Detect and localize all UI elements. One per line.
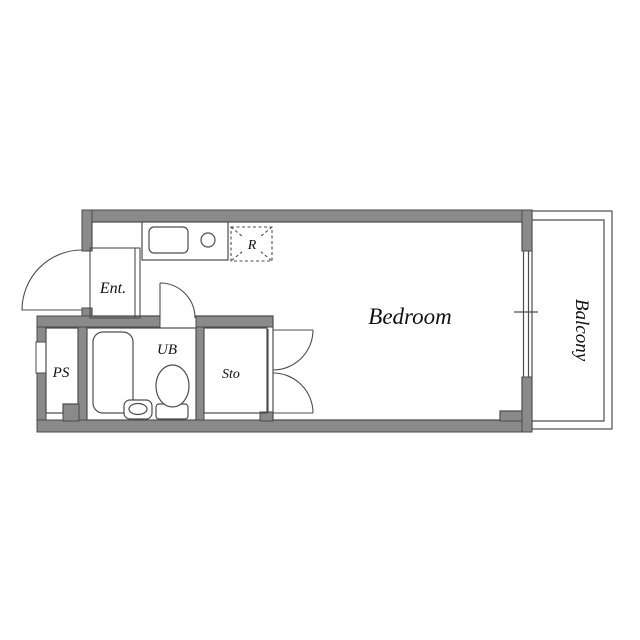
balcony-label: Balcony [571, 299, 592, 362]
pipe-space-label: PS [52, 365, 70, 381]
kitchen [142, 222, 228, 260]
meter-box-hatch [36, 342, 46, 373]
unit-bath-label: UB [157, 342, 177, 358]
wall-right-upper [522, 210, 532, 251]
bedroom-label: Bedroom [368, 304, 451, 329]
toilet-bowl [156, 365, 189, 407]
wall-left-lower [37, 316, 46, 432]
storage-label: Sto [222, 367, 240, 382]
wall-right-lower [522, 377, 532, 432]
floorplan-page: Ent. PS UB Sto R Bedroom Balcony [0, 0, 640, 640]
closet-door-lower-swing [273, 373, 313, 413]
refrigerator-label: R [247, 238, 257, 253]
wall-ps-corner-step [63, 404, 79, 421]
wall-left-upper [82, 210, 92, 251]
wall-bottom [37, 420, 532, 432]
entrance-door-swing [22, 250, 82, 310]
washbasin [124, 400, 152, 419]
floorplan-drawing: Ent. PS UB Sto R Bedroom Balcony [0, 0, 640, 640]
wall-ub-sto-divider [196, 327, 204, 421]
kitchen-sink [149, 227, 188, 253]
bath-door-swing [160, 283, 195, 318]
closet-door-upper-swing [273, 330, 313, 370]
wall-hall-bottom-right [196, 316, 273, 327]
stove-burner-icon [201, 233, 215, 247]
wall-top [82, 210, 532, 222]
entrance-label: Ent. [99, 280, 126, 297]
